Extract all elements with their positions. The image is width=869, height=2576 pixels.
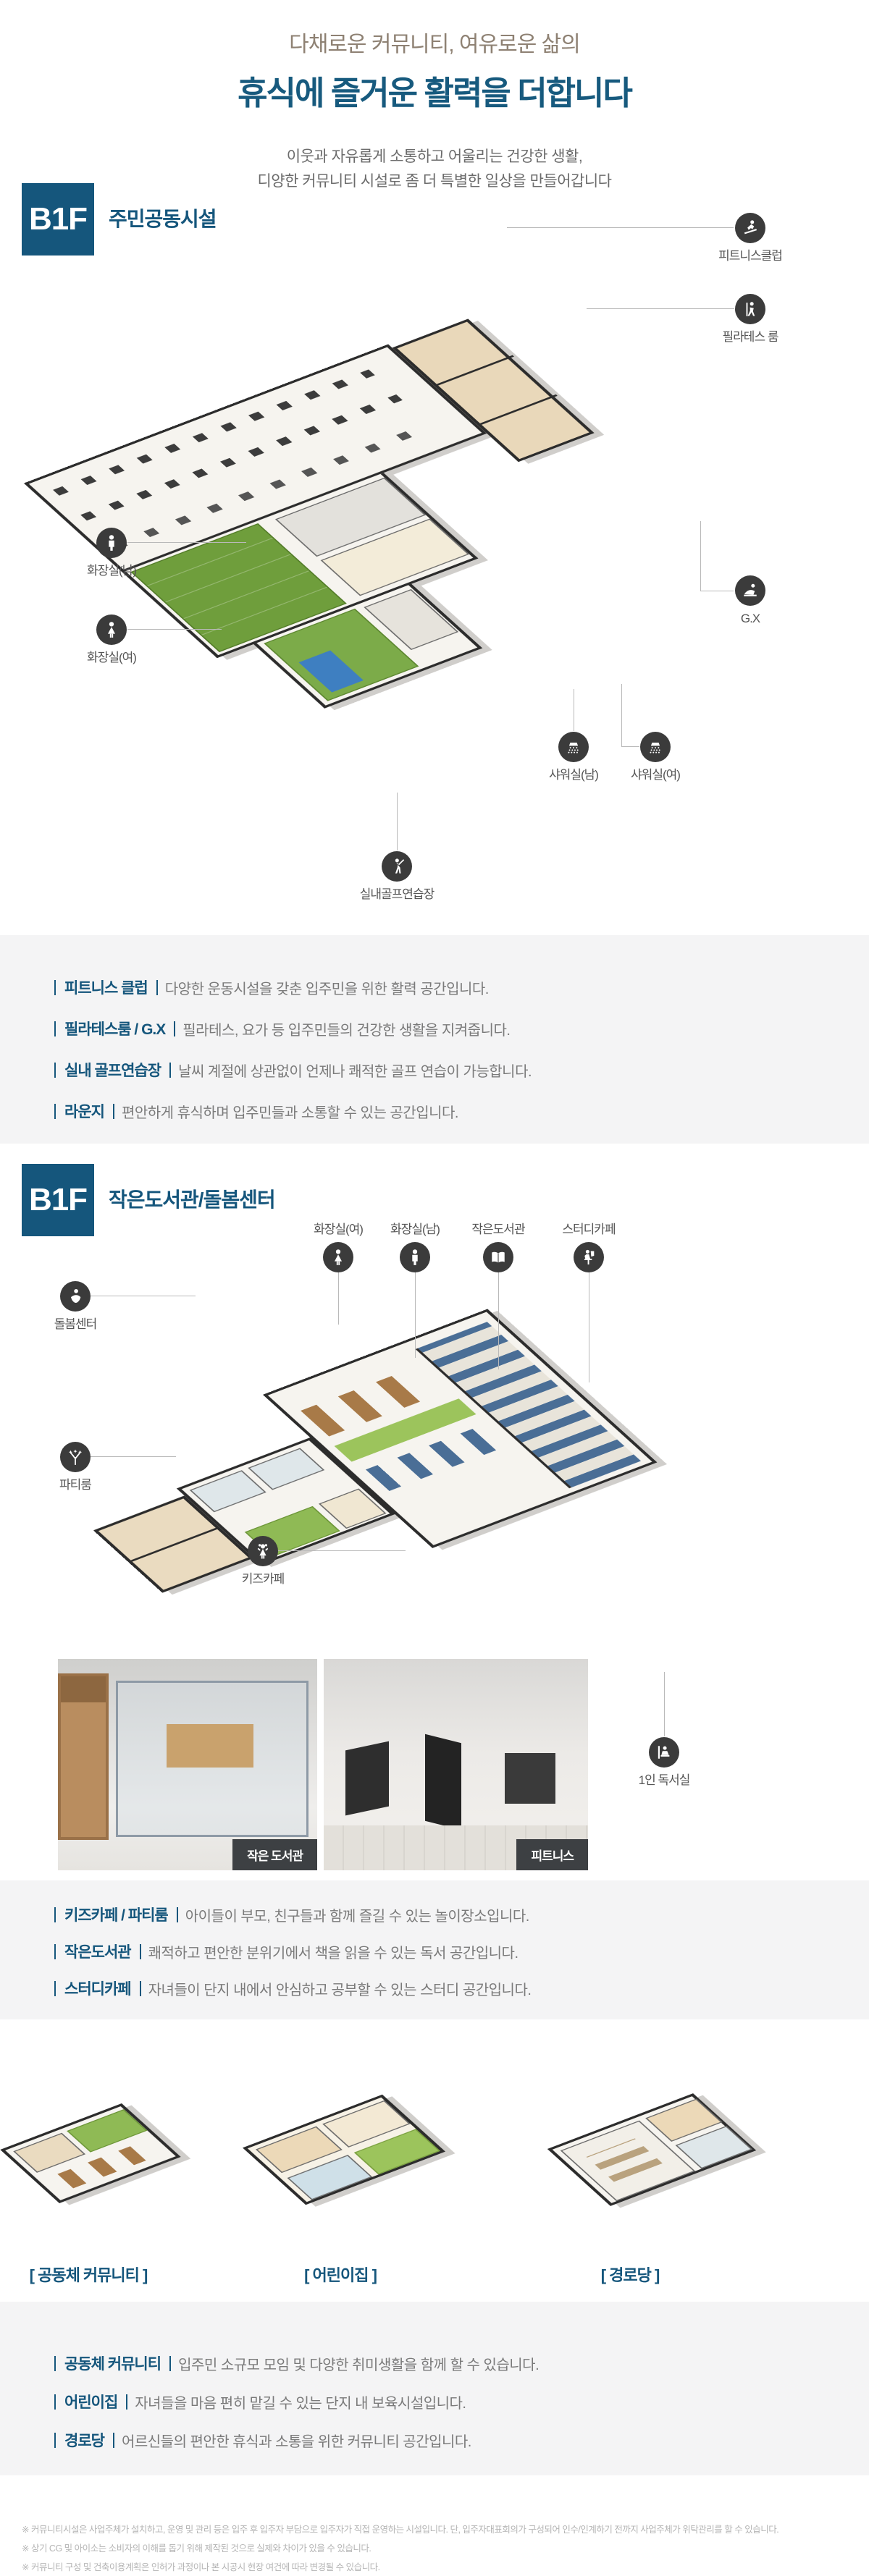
callout-line — [338, 1272, 339, 1325]
section2-description-box: 키즈카페 / 파티룸 아이들이 부모, 친구들과 함께 즐길 수 있는 놀이장소… — [0, 1880, 869, 2019]
callout-fitness-club: 피트니스클럽 — [689, 213, 812, 265]
callout-line — [664, 1672, 665, 1736]
description-term: 라운지 — [64, 1100, 104, 1122]
callout-label: 피트니스클럽 — [718, 247, 782, 265]
library-table — [167, 1724, 253, 1768]
divider-bar — [156, 980, 158, 995]
gym-equipment — [505, 1753, 555, 1804]
callout-label: 돌봄센터 — [54, 1315, 97, 1333]
description-term: 공동체 커뮤니티 — [64, 2352, 161, 2374]
divider-bar — [54, 980, 56, 995]
restroom-area — [248, 1448, 324, 1490]
floorplan-community-room — [0, 2103, 180, 2203]
plan-slab — [0, 2103, 180, 2203]
description-term: 어린이집 — [64, 2391, 117, 2412]
male-icon — [96, 528, 127, 558]
female-icon — [323, 1242, 353, 1272]
floorplan-senior-center — [547, 2093, 756, 2206]
divider-bar — [126, 2394, 127, 2410]
floor-badge-b1f-2: B1F — [22, 1164, 94, 1236]
divider-bar — [140, 1981, 141, 1996]
header-description-line1: 이웃과 자유롭게 소통하고 어울리는 건강한 생활, — [0, 145, 869, 169]
footer-note: ※ 커뮤니티시설은 사업주체가 설치하고, 운영 및 관리 등은 입주 후 입주… — [22, 2520, 862, 2539]
description-text: 자녀들을 마음 편히 맡길 수 있는 단지 내 보육시설입니다. — [135, 2391, 466, 2412]
footer-note: ※ 커뮤니티 구성 및 건축이용계획은 인허가 과정이나 본 시공시 현장 여건… — [22, 2558, 862, 2576]
callout-label: 샤워실(남) — [549, 766, 598, 784]
photo-badge: 작은 도서관 — [232, 1839, 317, 1870]
shower-icon — [640, 732, 671, 762]
callout-label: 작은도서관 — [471, 1220, 524, 1238]
description-term: 필라테스룸 / G.X — [64, 1018, 165, 1039]
description-row: 작은도서관 쾌적하고 편안한 분위기에서 책을 읽을 수 있는 독서 공간입니다… — [54, 1941, 869, 1962]
description-row: 실내 골프연습장 날씨 계절에 상관없이 언제나 쾌적한 골프 연습이 가능합니… — [54, 1059, 869, 1081]
kid-icon — [248, 1536, 278, 1566]
header-subtitle: 다채로운 커뮤니티, 여유로운 삶의 — [0, 26, 869, 58]
callout-party-room: 파티룸 — [14, 1442, 137, 1494]
photo-badge: 피트니스 — [516, 1839, 588, 1870]
gym-bench — [425, 1734, 461, 1830]
plan-label-community-room: [ 공동체 커뮤니티 ] — [30, 2263, 148, 2286]
treadmill-runner-icon — [735, 213, 765, 243]
gym-bench — [345, 1741, 389, 1816]
footer-note: ※ 상기 CG 및 아이소는 소비자의 이해를 돕기 위해 제작된 것으로 실제… — [22, 2539, 862, 2558]
callout-care-center: 돌봄센터 — [14, 1281, 137, 1333]
divider-bar — [54, 1063, 56, 1078]
description-term: 키즈카페 / 파티룸 — [64, 1904, 168, 1925]
description-text: 편안하게 휴식하며 입주민들과 소통할 수 있는 공간입니다. — [122, 1101, 458, 1122]
callout-line — [589, 1272, 589, 1382]
callout-label: 키즈카페 — [242, 1570, 285, 1588]
callout-gx: G.X — [689, 575, 812, 628]
divider-bar — [54, 1907, 56, 1922]
study-desk-icon — [574, 1242, 604, 1272]
callout-label: 스터디카페 — [562, 1220, 615, 1238]
floorplan-b1f-library-carecenter — [38, 1309, 701, 1673]
description-text: 어르신들의 편안한 휴식과 소통을 위한 커뮤니티 공간입니다. — [122, 2430, 471, 2451]
description-row: 경로당 어르신들의 편안한 휴식과 소통을 위한 커뮤니티 공간입니다. — [54, 2429, 869, 2451]
callout-kids-cafe: 키즈카페 — [201, 1536, 324, 1588]
description-term: 작은도서관 — [64, 1941, 131, 1962]
section2-title: 작은도서관/돌봄센터 — [109, 1164, 275, 1236]
section1-title: 주민공동시설 — [109, 183, 217, 256]
description-row: 스터디카페 자녀들이 단지 내에서 안심하고 공부할 수 있는 스터디 공간입니… — [54, 1977, 869, 1999]
callout-single-reading-room: 1인 독서실 — [603, 1737, 726, 1789]
floorplan-daycare — [243, 2095, 445, 2205]
page-title: 휴식에 즐거운 활력을 더합니다 — [0, 67, 869, 114]
bookshelf — [58, 1673, 109, 1840]
divider-bar — [140, 1944, 141, 1959]
divider-bar — [54, 1944, 56, 1959]
room-green — [67, 2109, 148, 2153]
description-term: 경로당 — [64, 2429, 104, 2451]
divider-bar — [169, 1063, 171, 1078]
floor-badge-b1f-1: B1F — [22, 183, 94, 256]
callout-indoor-golf: 실내골프연습장 — [335, 851, 458, 903]
description-row: 공동체 커뮤니티 입주민 소규모 모임 및 다양한 취미생활을 함께 할 수 있… — [54, 2352, 869, 2374]
wall-divider — [480, 394, 558, 425]
description-text: 쾌적하고 편안한 분위기에서 책을 읽을 수 있는 독서 공간입니다. — [148, 1941, 519, 1962]
description-text: 다양한 운동시설을 갖춘 입주민을 위한 활력 공간입니다. — [165, 977, 489, 998]
divider-bar — [113, 1104, 114, 1119]
divider-bar — [54, 2394, 56, 2410]
description-row: 피트니스 클럽 다양한 운동시설을 갖춘 입주민을 위한 활력 공간입니다. — [54, 976, 869, 998]
callout-line — [415, 1272, 416, 1358]
description-row: 라운지 편안하게 휴식하며 입주민들과 소통할 수 있는 공간입니다. — [54, 1100, 869, 1122]
baby-care-icon — [60, 1281, 91, 1312]
wall-divider — [437, 355, 514, 386]
photo-small-library: 작은 도서관 — [58, 1659, 317, 1870]
photo-fitness: 피트니스 — [324, 1659, 588, 1870]
callout-toilet-female: 화장실(여) — [50, 615, 173, 667]
divider-bar — [54, 2433, 56, 2448]
description-term: 스터디카페 — [64, 1977, 131, 1999]
callout-label: 화장실(여) — [87, 649, 136, 667]
description-term: 피트니스 클럽 — [64, 976, 148, 998]
callout-pilates-room: 필라테스 룸 — [689, 294, 812, 346]
reading-carrel-icon — [649, 1737, 679, 1768]
callout-label: 필라테스 룸 — [723, 328, 778, 346]
description-text: 입주민 소규모 모임 및 다양한 취미생활을 함께 할 수 있습니다. — [178, 2353, 539, 2374]
golfer-icon — [382, 851, 412, 882]
male-icon — [400, 1242, 430, 1272]
callout-label: 샤워실(여) — [631, 766, 680, 784]
callout-label: G.X — [741, 609, 760, 628]
plan-label-daycare: [ 어린이집 ] — [304, 2263, 377, 2286]
callout-line — [498, 1272, 499, 1369]
section1-description-box: 피트니스 클럽 다양한 운동시설을 갖춘 입주민을 위한 활력 공간입니다. 필… — [0, 935, 869, 1144]
community-facilities-page: 다채로운 커뮤니티, 여유로운 삶의 휴식에 즐거운 활력을 더합니다 이웃과 … — [0, 0, 869, 2576]
callout-label: 실내골프연습장 — [360, 885, 434, 903]
callout-toilet-male: 화장실(남) — [50, 528, 173, 580]
description-row: 필라테스룸 / G.X 필라테스, 요가 등 입주민들의 건강한 생활을 지켜줍… — [54, 1018, 869, 1039]
footer-notes: ※ 커뮤니티시설은 사업주체가 설치하고, 운영 및 관리 등은 입주 후 입주… — [22, 2520, 862, 2576]
restroom-area — [190, 1470, 266, 1512]
callout-line — [397, 793, 398, 850]
description-text: 필라테스, 요가 등 입주민들의 건강한 생활을 지켜줍니다. — [182, 1018, 510, 1039]
divider-bar — [54, 1021, 56, 1036]
shower-icon — [558, 732, 589, 762]
description-term: 실내 골프연습장 — [64, 1059, 161, 1081]
pilates-icon — [735, 294, 765, 324]
callout-label: 파티룸 — [59, 1476, 91, 1494]
callout-label: 1인 독서실 — [639, 1771, 690, 1789]
divider-bar — [177, 1907, 178, 1922]
callout-shower-female: 샤워실(여) — [594, 732, 717, 784]
callout-label: 화장실(남) — [87, 562, 136, 580]
divider-bar — [54, 1981, 56, 1996]
fireworks-icon — [60, 1442, 91, 1472]
divider-bar — [169, 2356, 171, 2371]
section3-description-box: 공동체 커뮤니티 입주민 소규모 모임 및 다양한 취미생활을 함께 할 수 있… — [0, 2302, 869, 2475]
description-row: 키즈카페 / 파티룸 아이들이 부모, 친구들과 함께 즐길 수 있는 놀이장소… — [54, 1904, 869, 1925]
divider-bar — [54, 2356, 56, 2371]
divider-bar — [54, 1104, 56, 1119]
yoga-icon — [735, 575, 765, 606]
callout-study-cafe: 스터디카페 — [527, 1220, 650, 1272]
plan-slab — [547, 2093, 756, 2206]
gym-equipment-row — [53, 369, 375, 495]
description-row: 어린이집 자녀들을 마음 편히 맡길 수 있는 단지 내 보육시설입니다. — [54, 2391, 869, 2412]
open-book-icon — [483, 1242, 513, 1272]
description-text: 아이들이 부모, 친구들과 함께 즐길 수 있는 놀이장소입니다. — [185, 1904, 529, 1925]
description-text: 날씨 계절에 상관없이 언제나 쾌적한 골프 연습이 가능합니다. — [178, 1060, 532, 1081]
divider-bar — [113, 2433, 114, 2448]
callout-line — [574, 689, 574, 731]
description-text: 자녀들이 단지 내에서 안심하고 공부할 수 있는 스터디 공간입니다. — [148, 1978, 532, 1999]
plan-slab — [243, 2095, 445, 2205]
plan-label-senior-center: [ 경로당 ] — [601, 2263, 660, 2286]
divider-bar — [174, 1021, 175, 1036]
callout-label: 화장실(남) — [390, 1220, 440, 1238]
female-icon — [96, 615, 127, 645]
